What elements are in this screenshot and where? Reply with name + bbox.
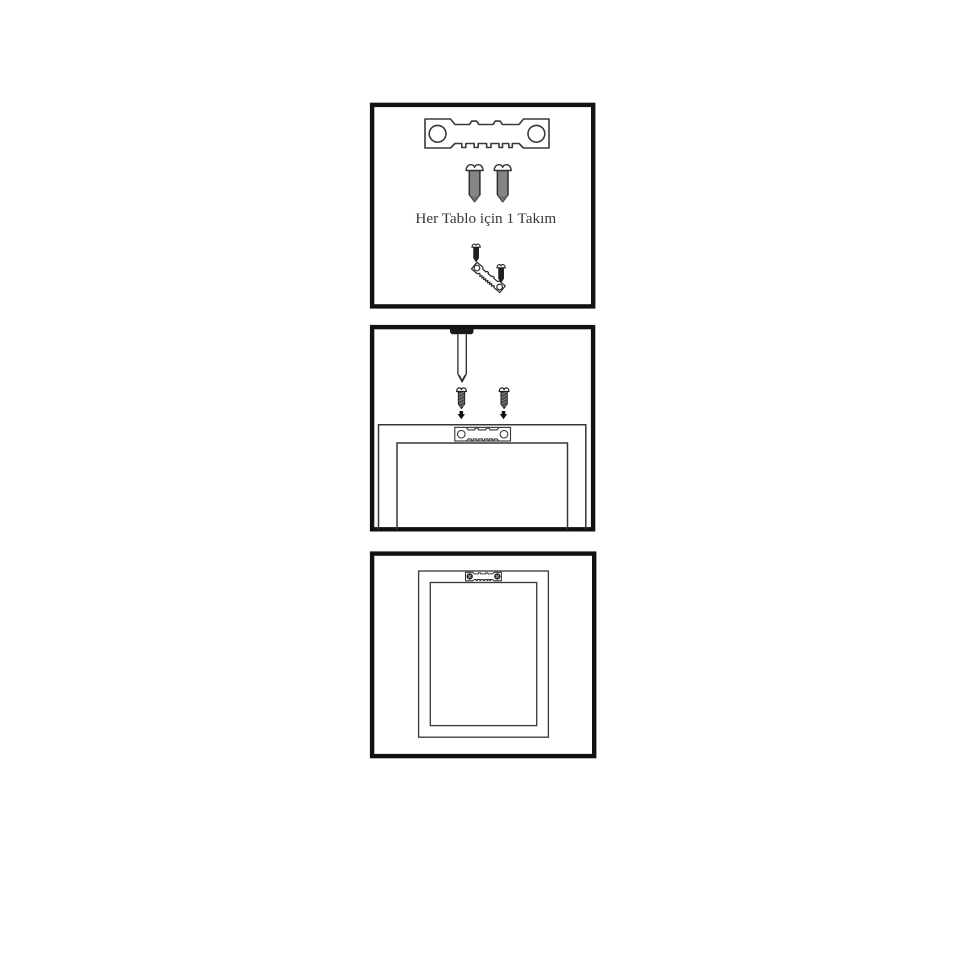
svg-text:Her Tablo için 1 Takım: Her Tablo için 1 Takım: [415, 210, 556, 227]
